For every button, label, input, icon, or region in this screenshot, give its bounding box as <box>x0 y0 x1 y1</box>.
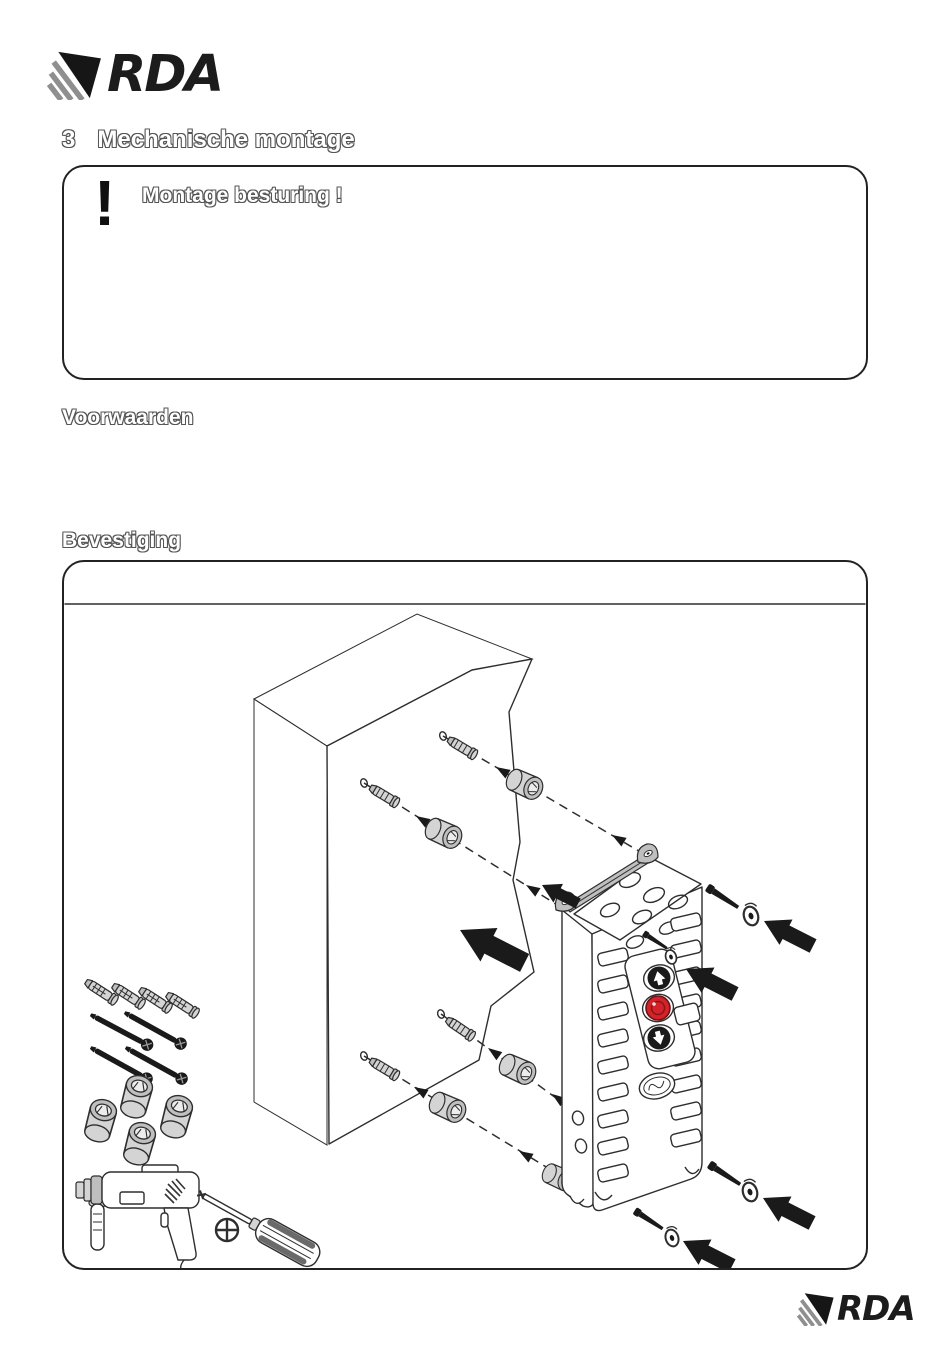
wall-plugs-set <box>83 977 201 1019</box>
rda-logo-icon <box>797 1292 835 1326</box>
direction-arrow-icon <box>758 908 820 958</box>
rda-logo-icon <box>46 50 104 100</box>
screw-icon <box>707 1160 743 1188</box>
bracket-ear-right <box>637 844 658 863</box>
insert-arrowhead <box>485 1044 502 1060</box>
wall <box>254 614 534 1145</box>
mounting-figure-box <box>62 560 868 1270</box>
hardware-kit <box>76 977 324 1268</box>
section-label-bevestiging: Bevestiging <box>62 529 181 553</box>
rib-column-left <box>597 947 629 1182</box>
mounting-illustration <box>64 562 866 1268</box>
direction-arrow-icon <box>757 1185 819 1235</box>
chapter-title: Mechanische montage <box>97 126 354 154</box>
footer-logo: RDA <box>797 1292 915 1326</box>
insert-arrowhead <box>516 1147 533 1163</box>
warning-title: Montage besturing ! <box>142 184 343 208</box>
direction-arrow-icon <box>677 1228 739 1268</box>
exclamation-icon: ! <box>94 167 115 239</box>
screw-icon <box>705 883 741 911</box>
header-logo: RDA <box>46 50 222 100</box>
spacers-set <box>82 1073 195 1168</box>
insert-arrowhead <box>609 831 626 847</box>
drill-icon <box>76 1165 199 1268</box>
wall-hatch-left <box>254 699 327 1145</box>
manual-page: RDA 3 Mechanische montage ! Montage best… <box>0 0 950 1353</box>
insert-arrowhead <box>523 881 540 897</box>
washer-icon <box>740 902 761 928</box>
screw-icon <box>633 1207 665 1232</box>
rda-logo-text: RDA <box>837 1292 915 1326</box>
stop-button-icon <box>646 996 670 1020</box>
control-unit-side <box>562 910 594 1207</box>
spacer-icon <box>426 1089 469 1125</box>
screwdriver-icon <box>192 1182 324 1268</box>
warning-box: ! Montage besturing ! <box>62 165 868 380</box>
washer-icon <box>663 1225 682 1248</box>
chapter-number: 3 <box>62 126 75 154</box>
rda-logo-text: RDA <box>107 50 222 100</box>
section-label-voorwaarden: Voorwaarden <box>62 406 193 430</box>
spacer-icon <box>496 1051 539 1087</box>
washer-icon <box>739 1178 760 1204</box>
phillips-symbol-icon <box>216 1219 238 1241</box>
chapter-heading: 3 Mechanische montage <box>62 126 355 154</box>
